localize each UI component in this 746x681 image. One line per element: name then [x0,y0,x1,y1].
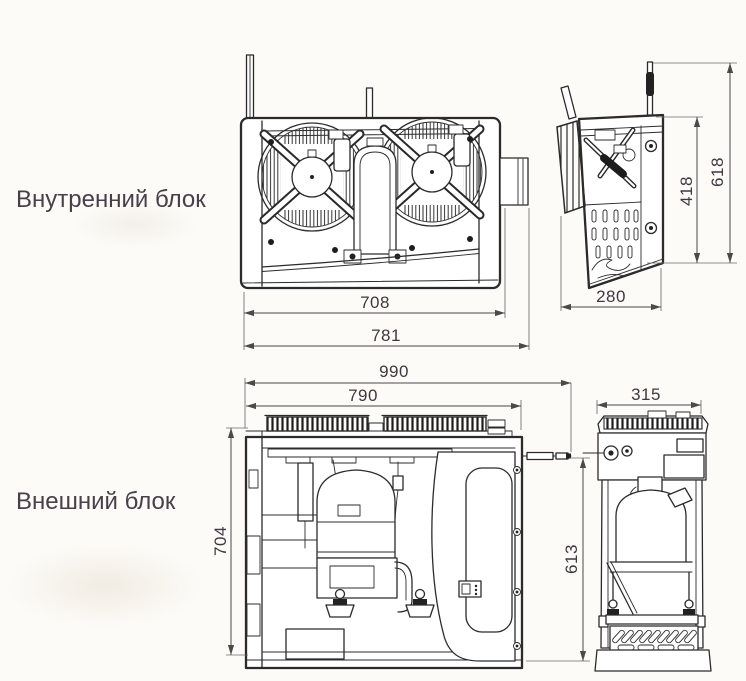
dim-outdoor-side-depth: 315 [631,385,661,405]
label-outdoor-unit: Внешний блок [16,488,175,516]
dim-indoor-front-width-inner: 708 [360,293,390,313]
indoor-top-pipes [247,55,373,119]
dim-outdoor-front-width-body: 790 [348,386,378,406]
dim-indoor-front-width-overall: 781 [371,326,401,346]
dim-indoor-side-height-overall: 618 [708,157,728,187]
dim-outdoor-front-height-left: 704 [211,526,231,556]
fan-shroud-rear [432,452,521,661]
outdoor-side-view [583,400,711,671]
top-grilles [262,416,512,438]
label-indoor-unit: Внутренний блок [16,186,206,214]
dim-outdoor-front-height-right: 613 [562,544,582,574]
dim-indoor-side-depth: 280 [596,287,626,307]
outdoor-front-view [226,378,590,668]
diagram-canvas: Внутренний блок Внешний блок 708 781 280… [0,0,746,681]
side-duct [500,158,528,205]
sensor-probe [522,453,571,460]
fan-left [258,123,366,231]
dim-indoor-side-height-body: 418 [677,176,697,206]
vent-coil [610,626,698,652]
dim-outdoor-front-width-overall: 990 [379,362,409,382]
